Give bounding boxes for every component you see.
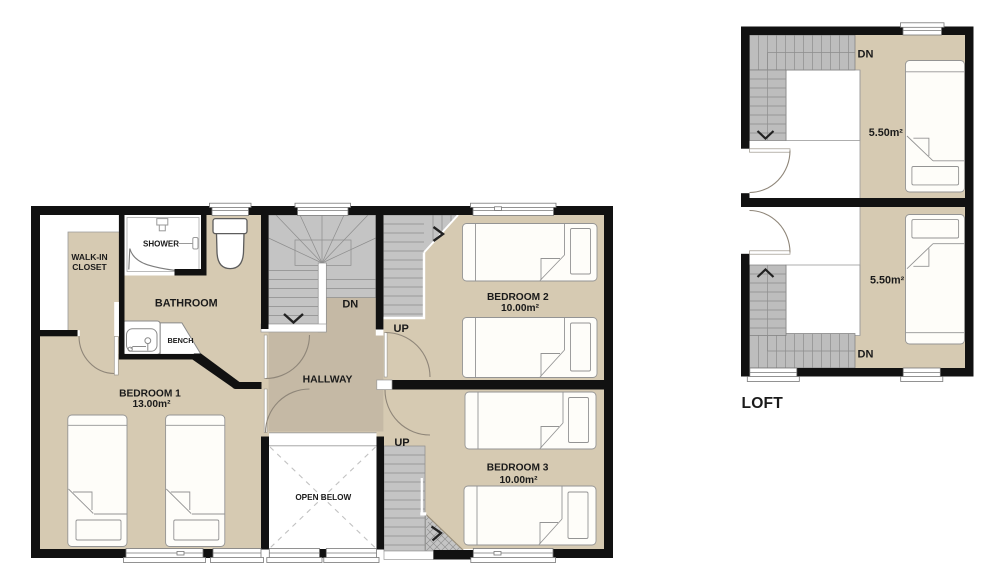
svg-text:10.00m²: 10.00m²	[500, 475, 539, 486]
svg-text:5.50m²: 5.50m²	[869, 127, 904, 139]
svg-text:13.00m²: 13.00m²	[133, 399, 172, 410]
svg-text:BATHROOM: BATHROOM	[155, 297, 218, 309]
svg-text:DN: DN	[342, 299, 358, 311]
svg-text:DN: DN	[858, 48, 874, 60]
svg-text:BEDROOM 2: BEDROOM 2	[487, 292, 549, 303]
svg-text:WALK-IN: WALK-IN	[71, 252, 107, 262]
svg-text:CLOSET: CLOSET	[72, 262, 107, 272]
svg-text:UP: UP	[394, 323, 409, 335]
svg-text:BEDROOM 3: BEDROOM 3	[487, 463, 549, 474]
svg-text:OPEN BELOW: OPEN BELOW	[295, 493, 351, 502]
svg-text:DN: DN	[858, 349, 874, 361]
svg-text:UP: UP	[394, 437, 409, 449]
svg-text:10.00m²: 10.00m²	[501, 303, 540, 314]
svg-text:SHOWER: SHOWER	[143, 240, 179, 249]
svg-text:HALLWAY: HALLWAY	[303, 375, 353, 386]
svg-text:BENCH: BENCH	[168, 336, 194, 345]
svg-text:LOFT: LOFT	[742, 395, 784, 412]
svg-text:5.50m²: 5.50m²	[870, 274, 905, 286]
